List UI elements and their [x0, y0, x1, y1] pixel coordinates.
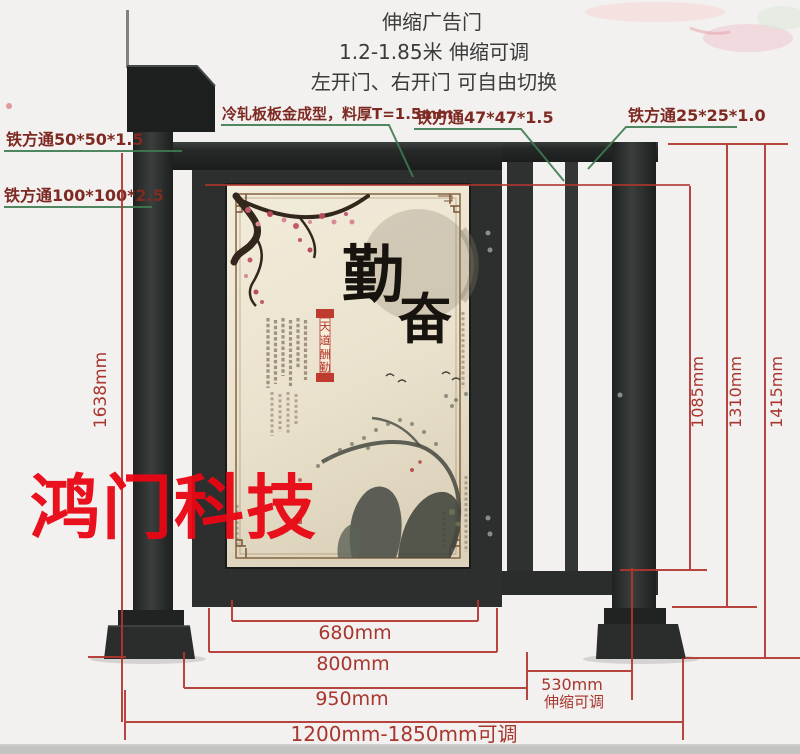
moss [449, 509, 455, 515]
dim-label-950: 950mm [315, 688, 388, 710]
right-post [612, 142, 656, 610]
red-blossom [418, 460, 422, 464]
title-line1: 伸缩广告门 [382, 10, 482, 34]
moss [456, 522, 461, 527]
picket-thin [565, 162, 578, 571]
left-base [104, 626, 195, 659]
top-beam [173, 142, 502, 170]
seal-char-1: 天 [320, 320, 331, 333]
watermark-text: 鸿门科技 [30, 467, 318, 549]
floor-band [0, 746, 800, 754]
advertising-gate-diagram: 勤 奋 天 道 酬 勤 [0, 0, 800, 754]
right-base-lip [604, 608, 666, 624]
dim-label-530: 530mm [541, 675, 603, 694]
smudge [6, 103, 12, 109]
callout-tube50: 铁方通50*50*1.5 [6, 130, 144, 149]
dim-label-530-note: 伸缩可调 [544, 693, 604, 711]
left-base-lip [118, 610, 184, 626]
dim-label-1638: 1638mm [91, 352, 111, 428]
callout-tube47: 铁方通47*47*1.5 [416, 108, 554, 127]
diagram-canvas: 勤 奋 天 道 酬 勤 [0, 0, 800, 754]
dim-label-1200-1850: 1200mm-1850mm可调 [291, 722, 518, 746]
poster-calligraphy-fen: 奋 [398, 287, 452, 351]
right-base [596, 624, 686, 659]
seal-char-2: 道 [320, 333, 331, 347]
poster-calligraphy-qin: 勤 [342, 238, 404, 311]
dim-label-680: 680mm [318, 622, 391, 644]
picket-wide [507, 162, 533, 571]
motor-box [127, 66, 215, 132]
dim-label-800: 800mm [316, 653, 389, 675]
callout-tube25: 铁方通25*25*1.0 [628, 106, 766, 125]
seal-char-4: 勤 [320, 361, 331, 374]
title-line2: 1.2-1.85米 伸缩可调 [339, 40, 529, 64]
antenna [126, 10, 129, 68]
dim-label-1415: 1415mm [767, 356, 786, 428]
dim-label-1085: 1085mm [688, 356, 707, 428]
callout-tube100: 铁方通100*100*2.5 [4, 186, 164, 205]
red-blossom [410, 468, 414, 472]
title-line3: 左开门、右开门 可自由切换 [311, 70, 557, 94]
dim-label-1310: 1310mm [726, 356, 745, 428]
smudge [585, 2, 725, 22]
seal-char-3: 酬 [320, 348, 331, 361]
